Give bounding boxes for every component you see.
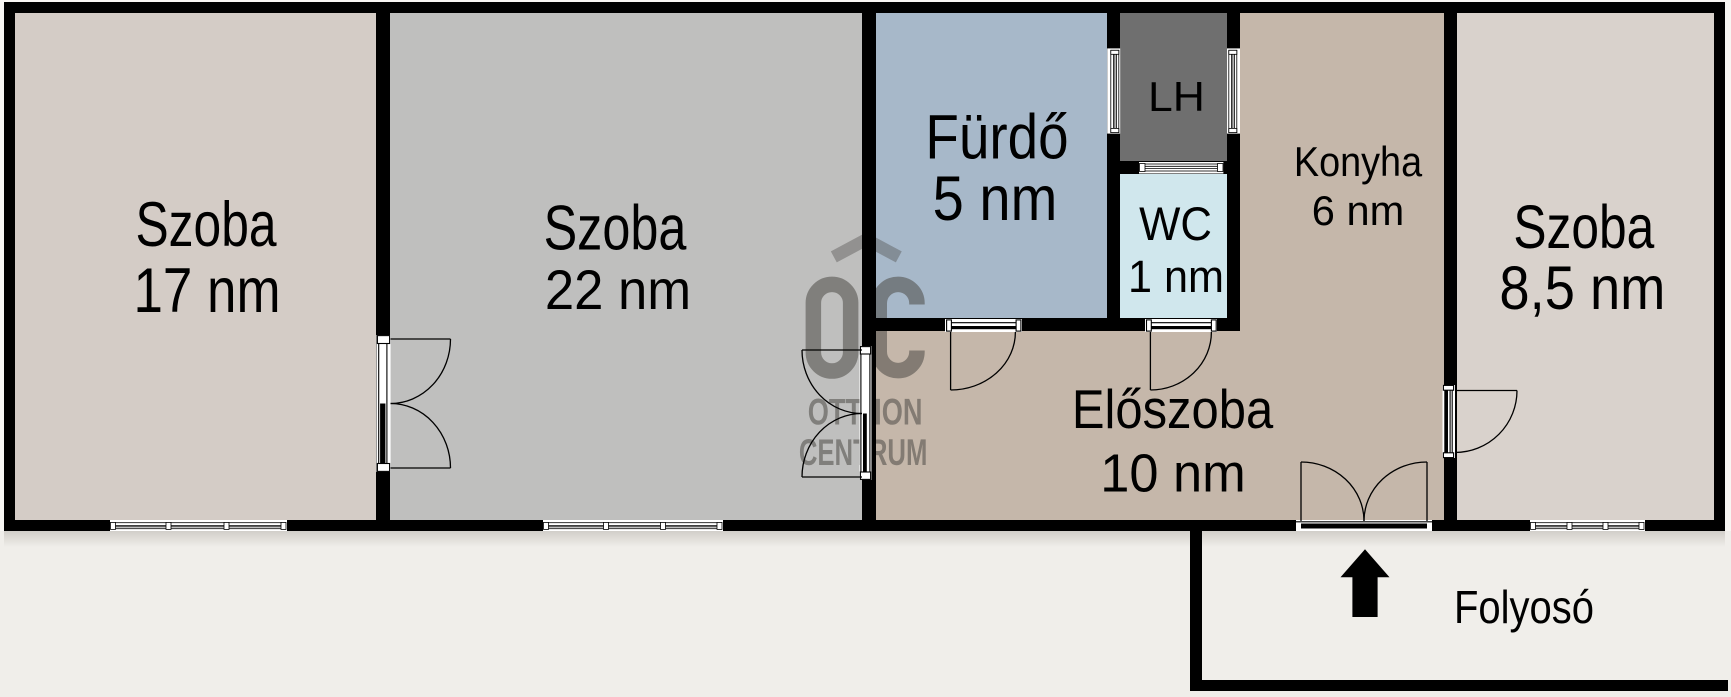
svg-text:Konyha: Konyha bbox=[1294, 139, 1423, 185]
svg-text:Szoba: Szoba bbox=[135, 191, 276, 261]
svg-text:Folyosó: Folyosó bbox=[1454, 582, 1594, 633]
svg-text:8,5 nm: 8,5 nm bbox=[1499, 255, 1665, 323]
svg-text:WC: WC bbox=[1139, 198, 1212, 251]
svg-text:1 nm: 1 nm bbox=[1128, 252, 1224, 302]
svg-text:Fürdő: Fürdő bbox=[925, 102, 1068, 172]
svg-text:17 nm: 17 nm bbox=[133, 256, 280, 326]
svg-text:22 nm: 22 nm bbox=[545, 259, 691, 322]
svg-text:5 nm: 5 nm bbox=[933, 163, 1058, 234]
svg-text:6 nm: 6 nm bbox=[1312, 187, 1404, 234]
svg-text:LH: LH bbox=[1148, 74, 1205, 121]
svg-text:10 nm: 10 nm bbox=[1100, 444, 1246, 504]
svg-text:Előszoba: Előszoba bbox=[1072, 379, 1273, 440]
svg-text:Szoba: Szoba bbox=[1513, 193, 1654, 261]
svg-text:Szoba: Szoba bbox=[544, 193, 687, 264]
